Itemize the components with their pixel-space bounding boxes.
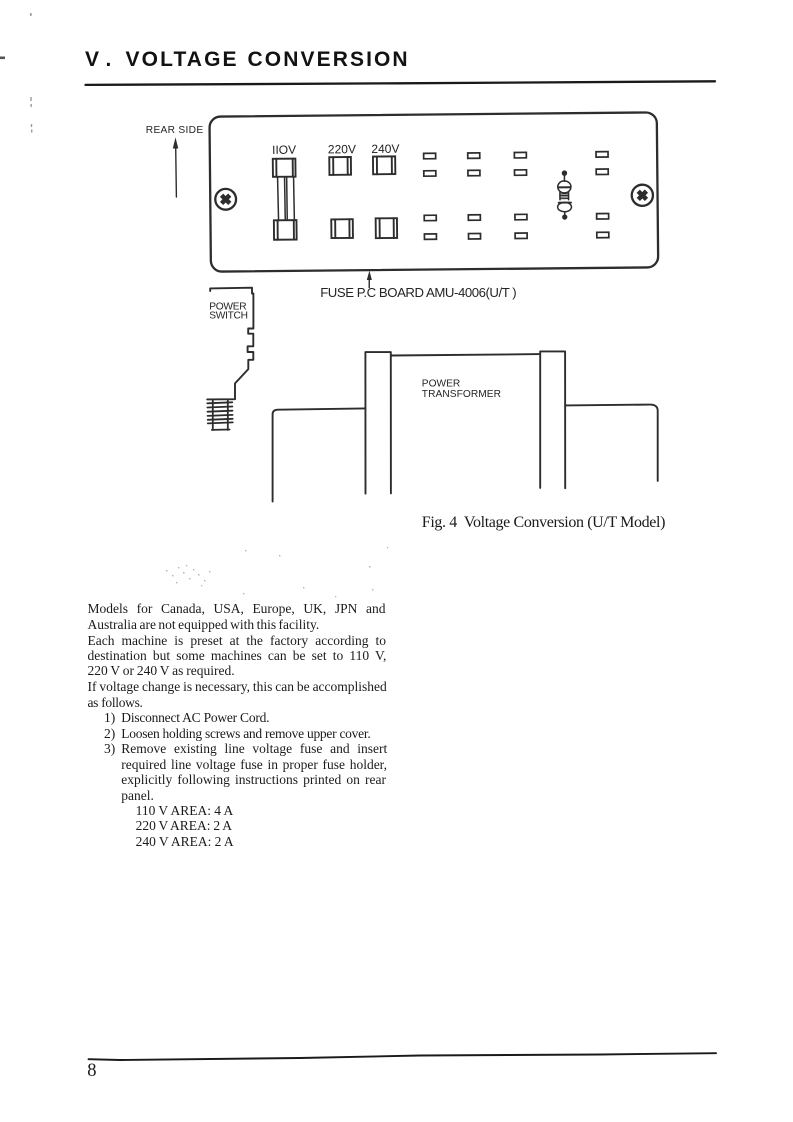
svg-text:SWITCH: SWITCH xyxy=(209,311,247,322)
svg-text:REAR SIDE: REAR SIDE xyxy=(146,125,204,136)
svg-text:TRANSFORMER: TRANSFORMER xyxy=(422,389,501,400)
svg-text:FUSE P.C BOARD AMU-4006(U/T: FUSE P.C BOARD AMU-4006(U/T ) xyxy=(320,285,516,300)
svg-text:240V: 240V xyxy=(371,142,399,156)
svg-text:POWER: POWER xyxy=(422,379,461,390)
svg-text:IIOV: IIOV xyxy=(272,143,296,157)
svg-text:220V: 220V xyxy=(328,142,356,156)
